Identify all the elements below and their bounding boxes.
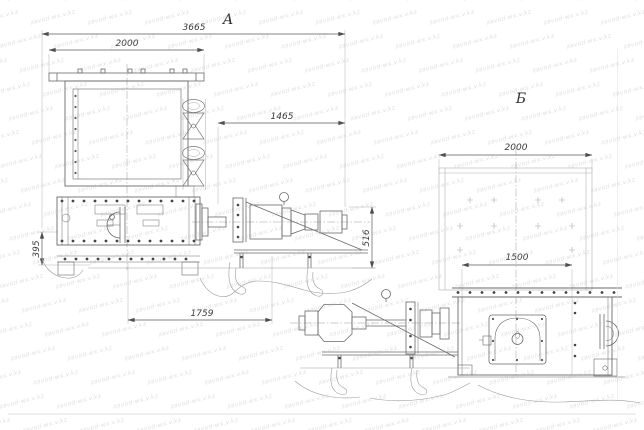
dim-1759-label: 1759 — [191, 309, 214, 319]
dim-1465-label: 1465 — [271, 112, 294, 122]
dim-516-label: 516 — [362, 229, 372, 246]
view-b-drive — [299, 290, 458, 369]
view-a-label: А — [222, 12, 234, 28]
view-a-body — [65, 81, 188, 186]
view-a-drive — [196, 193, 368, 269]
view-b: 2000 1500 Б — [290, 91, 640, 403]
view-a-extension-lines — [38, 30, 376, 324]
machine-drawing: 3665 2000 1465 395 516 1759 А — [0, 0, 644, 430]
dim-395-label: 395 — [32, 240, 42, 257]
technical-drawing-sheet: 3665 2000 1465 395 516 1759 А — [0, 0, 644, 430]
view-a-housing-bolts — [61, 200, 196, 261]
view-a-top-cover — [49, 69, 204, 81]
view-b-centerlines — [290, 148, 516, 377]
view-a-pulleys — [176, 99, 206, 197]
view-a-foundation — [42, 259, 375, 297]
view-a-bearing-clamp — [107, 207, 125, 243]
dim-3665-label: 3665 — [183, 23, 206, 33]
view-a-body-bolts — [74, 95, 76, 174]
dim-2000-a-label: 2000 — [116, 39, 139, 49]
view-a: 3665 2000 1465 395 516 1759 А — [32, 12, 376, 324]
view-a-housing — [57, 197, 200, 275]
view-b-access-door — [479, 315, 546, 364]
view-b-door-bolts — [492, 318, 543, 361]
view-b-dimension-lines — [439, 155, 592, 265]
view-a-dimension-lines — [42, 34, 372, 320]
view-a-centerlines — [127, 64, 370, 270]
view-b-foundation — [295, 368, 640, 403]
dim-1500-label: 1500 — [506, 253, 529, 263]
view-b-shaft-cap — [594, 314, 619, 376]
view-b-flange-bolts — [457, 291, 616, 357]
view-b-label: Б — [515, 91, 526, 107]
